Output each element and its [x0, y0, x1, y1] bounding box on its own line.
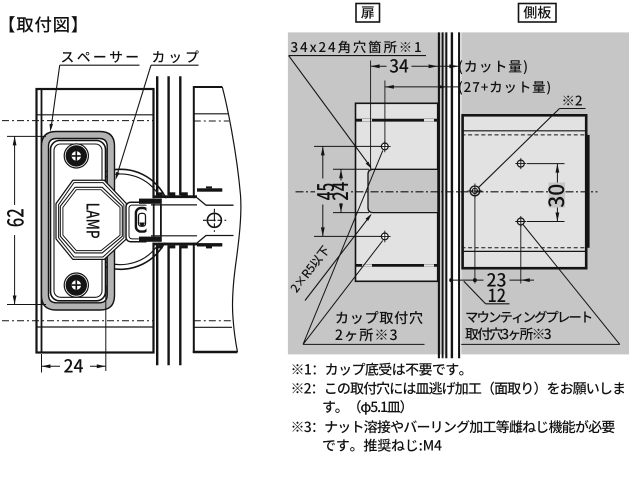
- svg-text:扉: 扉: [361, 3, 375, 23]
- svg-text:※2：この取付穴には皿逃げ加工（面取り）をお願いしま: ※2：この取付穴には皿逃げ加工（面取り）をお願いしま: [291, 379, 626, 399]
- svg-text:34x24角穴箇所※1: 34x24角穴箇所※1: [291, 36, 424, 56]
- svg-text:※1：カップ底受は不要です。: ※1：カップ底受は不要です。: [291, 360, 473, 380]
- svg-text:24: 24: [325, 182, 355, 201]
- svg-text:24: 24: [64, 352, 84, 378]
- svg-text:カップ: カップ: [152, 46, 202, 66]
- svg-text:※2: ※2: [562, 90, 583, 110]
- svg-text:2ヶ所※3: 2ヶ所※3: [335, 325, 399, 345]
- svg-text:34: 34: [389, 52, 409, 78]
- svg-text:す。（φ5.1皿）: す。（φ5.1皿）: [322, 397, 412, 417]
- svg-text:スペーサー: スペーサー: [61, 46, 142, 66]
- svg-text:LAMP: LAMP: [81, 203, 106, 239]
- svg-text:(カット量): (カット量): [458, 55, 529, 75]
- svg-text:30: 30: [541, 184, 571, 208]
- svg-text:取付穴3ヶ所※3: 取付穴3ヶ所※3: [465, 323, 552, 343]
- svg-text:【取付図】: 【取付図】: [0, 12, 89, 37]
- svg-text:です。推奨ねじ:M4: です。推奨ねじ:M4: [322, 435, 442, 455]
- svg-text:※3：ナット溶接やバーリング加工等雌ねじ機能が必要: ※3：ナット溶接やバーリング加工等雌ねじ機能が必要: [291, 417, 616, 437]
- svg-text:(27+カット量): (27+カット量): [458, 76, 552, 96]
- svg-text:側板: 側板: [523, 3, 551, 23]
- svg-text:62: 62: [0, 208, 31, 227]
